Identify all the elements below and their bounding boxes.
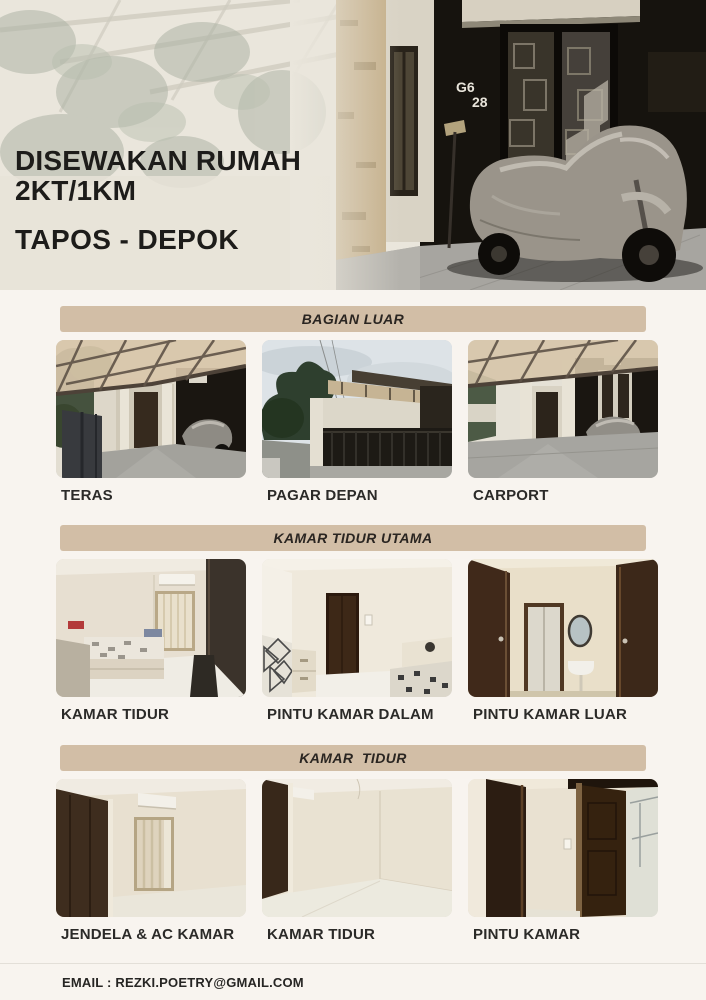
- photo-row: JENDELA & AC KAMAR: [0, 779, 706, 943]
- photo-row: TERAS: [0, 340, 706, 504]
- section-bagian-luar: BAGIAN LUAR: [0, 306, 706, 504]
- photo-card-pintu-kamar: PINTU KAMAR: [468, 779, 658, 943]
- photo-row: KAMAR TIDUR: [0, 559, 706, 723]
- photo-label: KAMAR TIDUR: [56, 706, 246, 723]
- photo-card-pagar-depan: PAGAR DEPAN: [262, 340, 452, 504]
- pintu-kamar-photo: [468, 779, 658, 917]
- hero-title-line1: DISEWAKAN RUMAH: [15, 146, 301, 176]
- hero-title-line2: 2KT/1KM: [15, 176, 301, 206]
- photo-card-pintu-kamar-dalam: PINTU KAMAR DALAM: [262, 559, 452, 723]
- photo-label: PINTU KAMAR DALAM: [262, 706, 452, 723]
- kamar-tidur-2-photo: [262, 779, 452, 917]
- carport-photo: [468, 340, 658, 478]
- house-number-bottom: 28: [472, 94, 488, 110]
- hero-title: DISEWAKAN RUMAH 2KT/1KM: [15, 146, 301, 205]
- section-header-banner: KAMAR TIDUR: [60, 745, 646, 771]
- photo-label: PINTU KAMAR LUAR: [468, 706, 658, 723]
- section-kamar-tidur-utama: KAMAR TIDUR UTAMA: [0, 525, 706, 723]
- photo-label: PAGAR DEPAN: [262, 487, 452, 504]
- house-number-top: G6: [456, 79, 475, 95]
- section-kamar-tidur: KAMAR TIDUR: [0, 745, 706, 943]
- photo-card-kamar-tidur-utama: KAMAR TIDUR: [56, 559, 246, 723]
- kamar-tidur-utama-photo: [56, 559, 246, 697]
- hero-location: TAPOS - DEPOK: [15, 224, 239, 256]
- section-header-banner: KAMAR TIDUR UTAMA: [60, 525, 646, 551]
- section-header-label: BAGIAN LUAR: [302, 311, 404, 327]
- photo-label: CARPORT: [468, 487, 658, 504]
- pintu-kamar-dalam-photo: [262, 559, 452, 697]
- photo-card-jendela-ac: JENDELA & AC KAMAR: [56, 779, 246, 943]
- section-header-label: KAMAR TIDUR UTAMA: [274, 530, 433, 546]
- flyer-page: G6 28: [0, 0, 706, 1000]
- pagar-depan-photo: [262, 340, 452, 478]
- photo-label: JENDELA & AC KAMAR: [56, 926, 246, 943]
- photo-card-teras: TERAS: [56, 340, 246, 504]
- hero-section: G6 28: [0, 0, 706, 290]
- jendela-ac-kamar-photo: [56, 779, 246, 917]
- photo-label: TERAS: [56, 487, 246, 504]
- footer-divider: [0, 963, 706, 964]
- teras-photo: [56, 340, 246, 478]
- photo-card-carport: CARPORT: [468, 340, 658, 504]
- photo-card-kamar-tidur-2: KAMAR TIDUR: [262, 779, 452, 943]
- photo-card-pintu-kamar-luar: PINTU KAMAR LUAR: [468, 559, 658, 723]
- photo-label: PINTU KAMAR: [468, 926, 658, 943]
- photo-label: KAMAR TIDUR: [262, 926, 452, 943]
- section-header-banner: BAGIAN LUAR: [60, 306, 646, 332]
- contact-email: EMAIL : REZKI.POETRY@GMAIL.COM: [62, 975, 706, 990]
- pintu-kamar-luar-photo: [468, 559, 658, 697]
- section-header-label: KAMAR TIDUR: [299, 750, 406, 766]
